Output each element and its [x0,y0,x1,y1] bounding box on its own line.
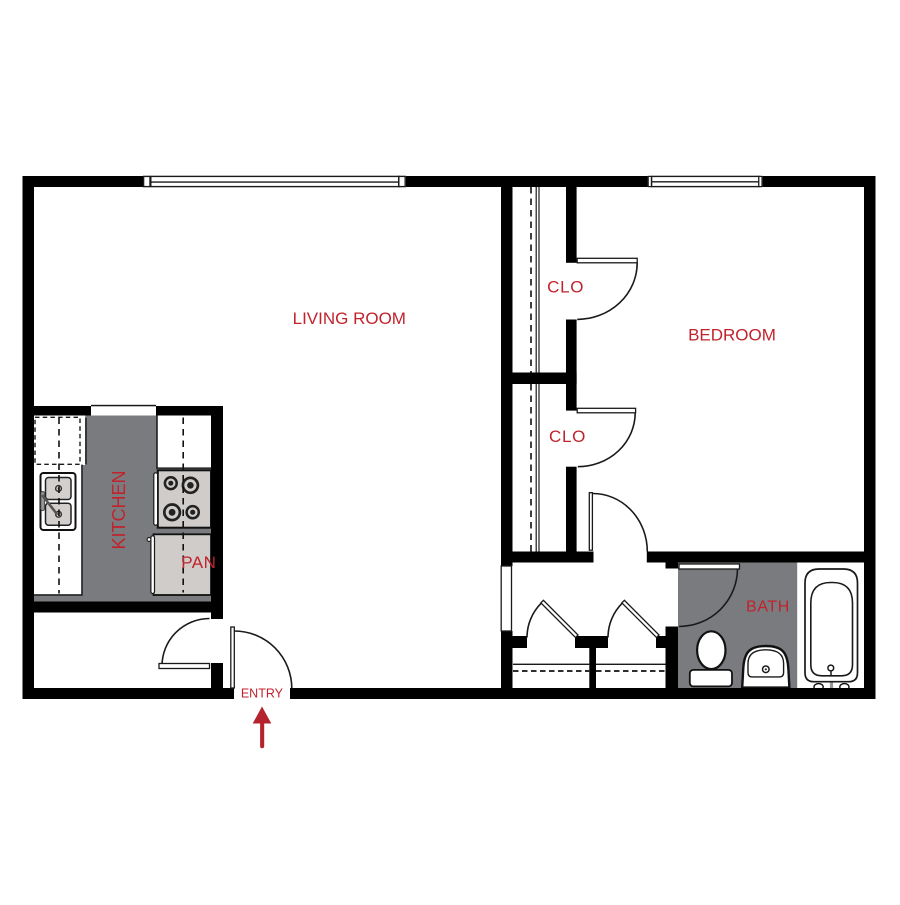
svg-text:PAN: PAN [181,553,216,572]
svg-text:ENTRY: ENTRY [241,687,284,701]
svg-text:LIVING ROOM: LIVING ROOM [293,309,406,328]
svg-text:BATH: BATH [746,599,790,616]
svg-text:KITCHEN: KITCHEN [109,470,129,549]
svg-text:CLO: CLO [547,278,584,297]
svg-text:CLO: CLO [549,427,586,446]
svg-text:BEDROOM: BEDROOM [688,326,776,345]
